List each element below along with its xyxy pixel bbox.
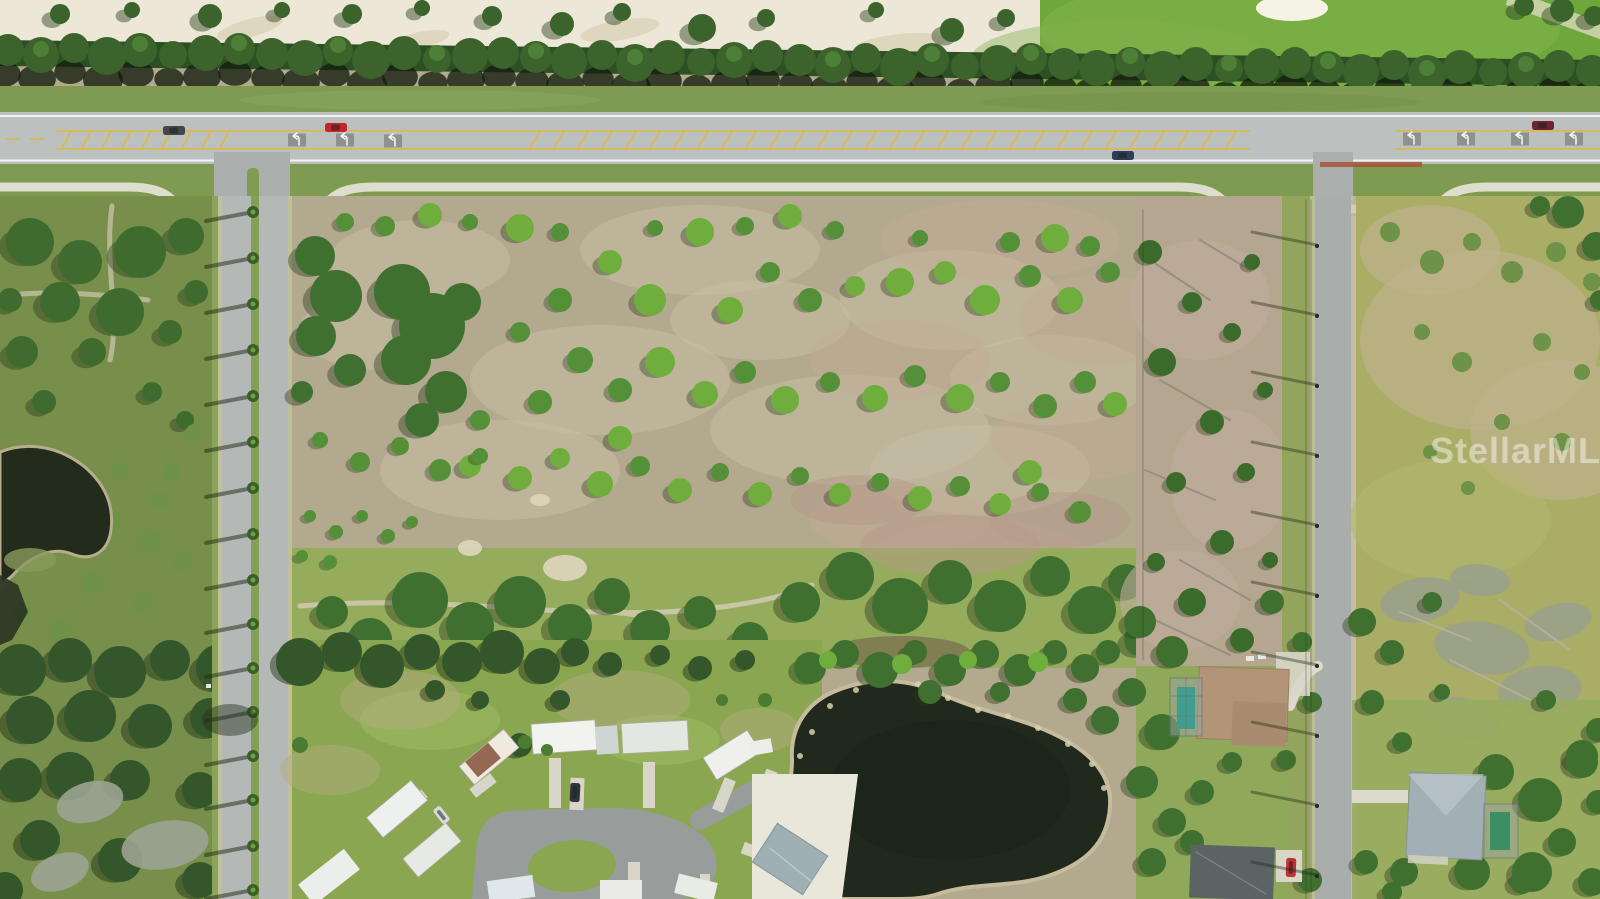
- mobile-home-park: [270, 630, 822, 899]
- car-dark-gray: [163, 126, 185, 135]
- boulevard-lane-west: [222, 196, 251, 899]
- car-dark-blue: [1112, 151, 1134, 160]
- vacant-parcel: [284, 196, 1180, 668]
- mobile-home: [600, 880, 642, 899]
- aerial-scene: [0, 0, 1600, 899]
- car-red: [325, 123, 347, 132]
- carport: [595, 725, 619, 754]
- mobile-home: [621, 720, 688, 753]
- red-crosswalk-stripe: [1320, 162, 1422, 167]
- car-maroon: [1532, 121, 1554, 130]
- aerial-photo: StellarMLS: [0, 0, 1600, 899]
- right-road-asphalt: [1315, 196, 1351, 899]
- house-c-roof: [1189, 845, 1275, 899]
- right-intersection-mouth: [1313, 152, 1353, 200]
- mobile-home: [531, 720, 597, 754]
- car-dark-driveway: [570, 783, 581, 802]
- boulevard-lane-east: [259, 196, 288, 899]
- house-b-driveway: [1352, 790, 1408, 803]
- palm-boulevard: [202, 196, 299, 899]
- right-road-zone: [1282, 196, 1356, 899]
- pond-area: [749, 636, 1120, 899]
- car-red-driveway: [1286, 858, 1297, 877]
- house-b-pool: [1490, 812, 1510, 850]
